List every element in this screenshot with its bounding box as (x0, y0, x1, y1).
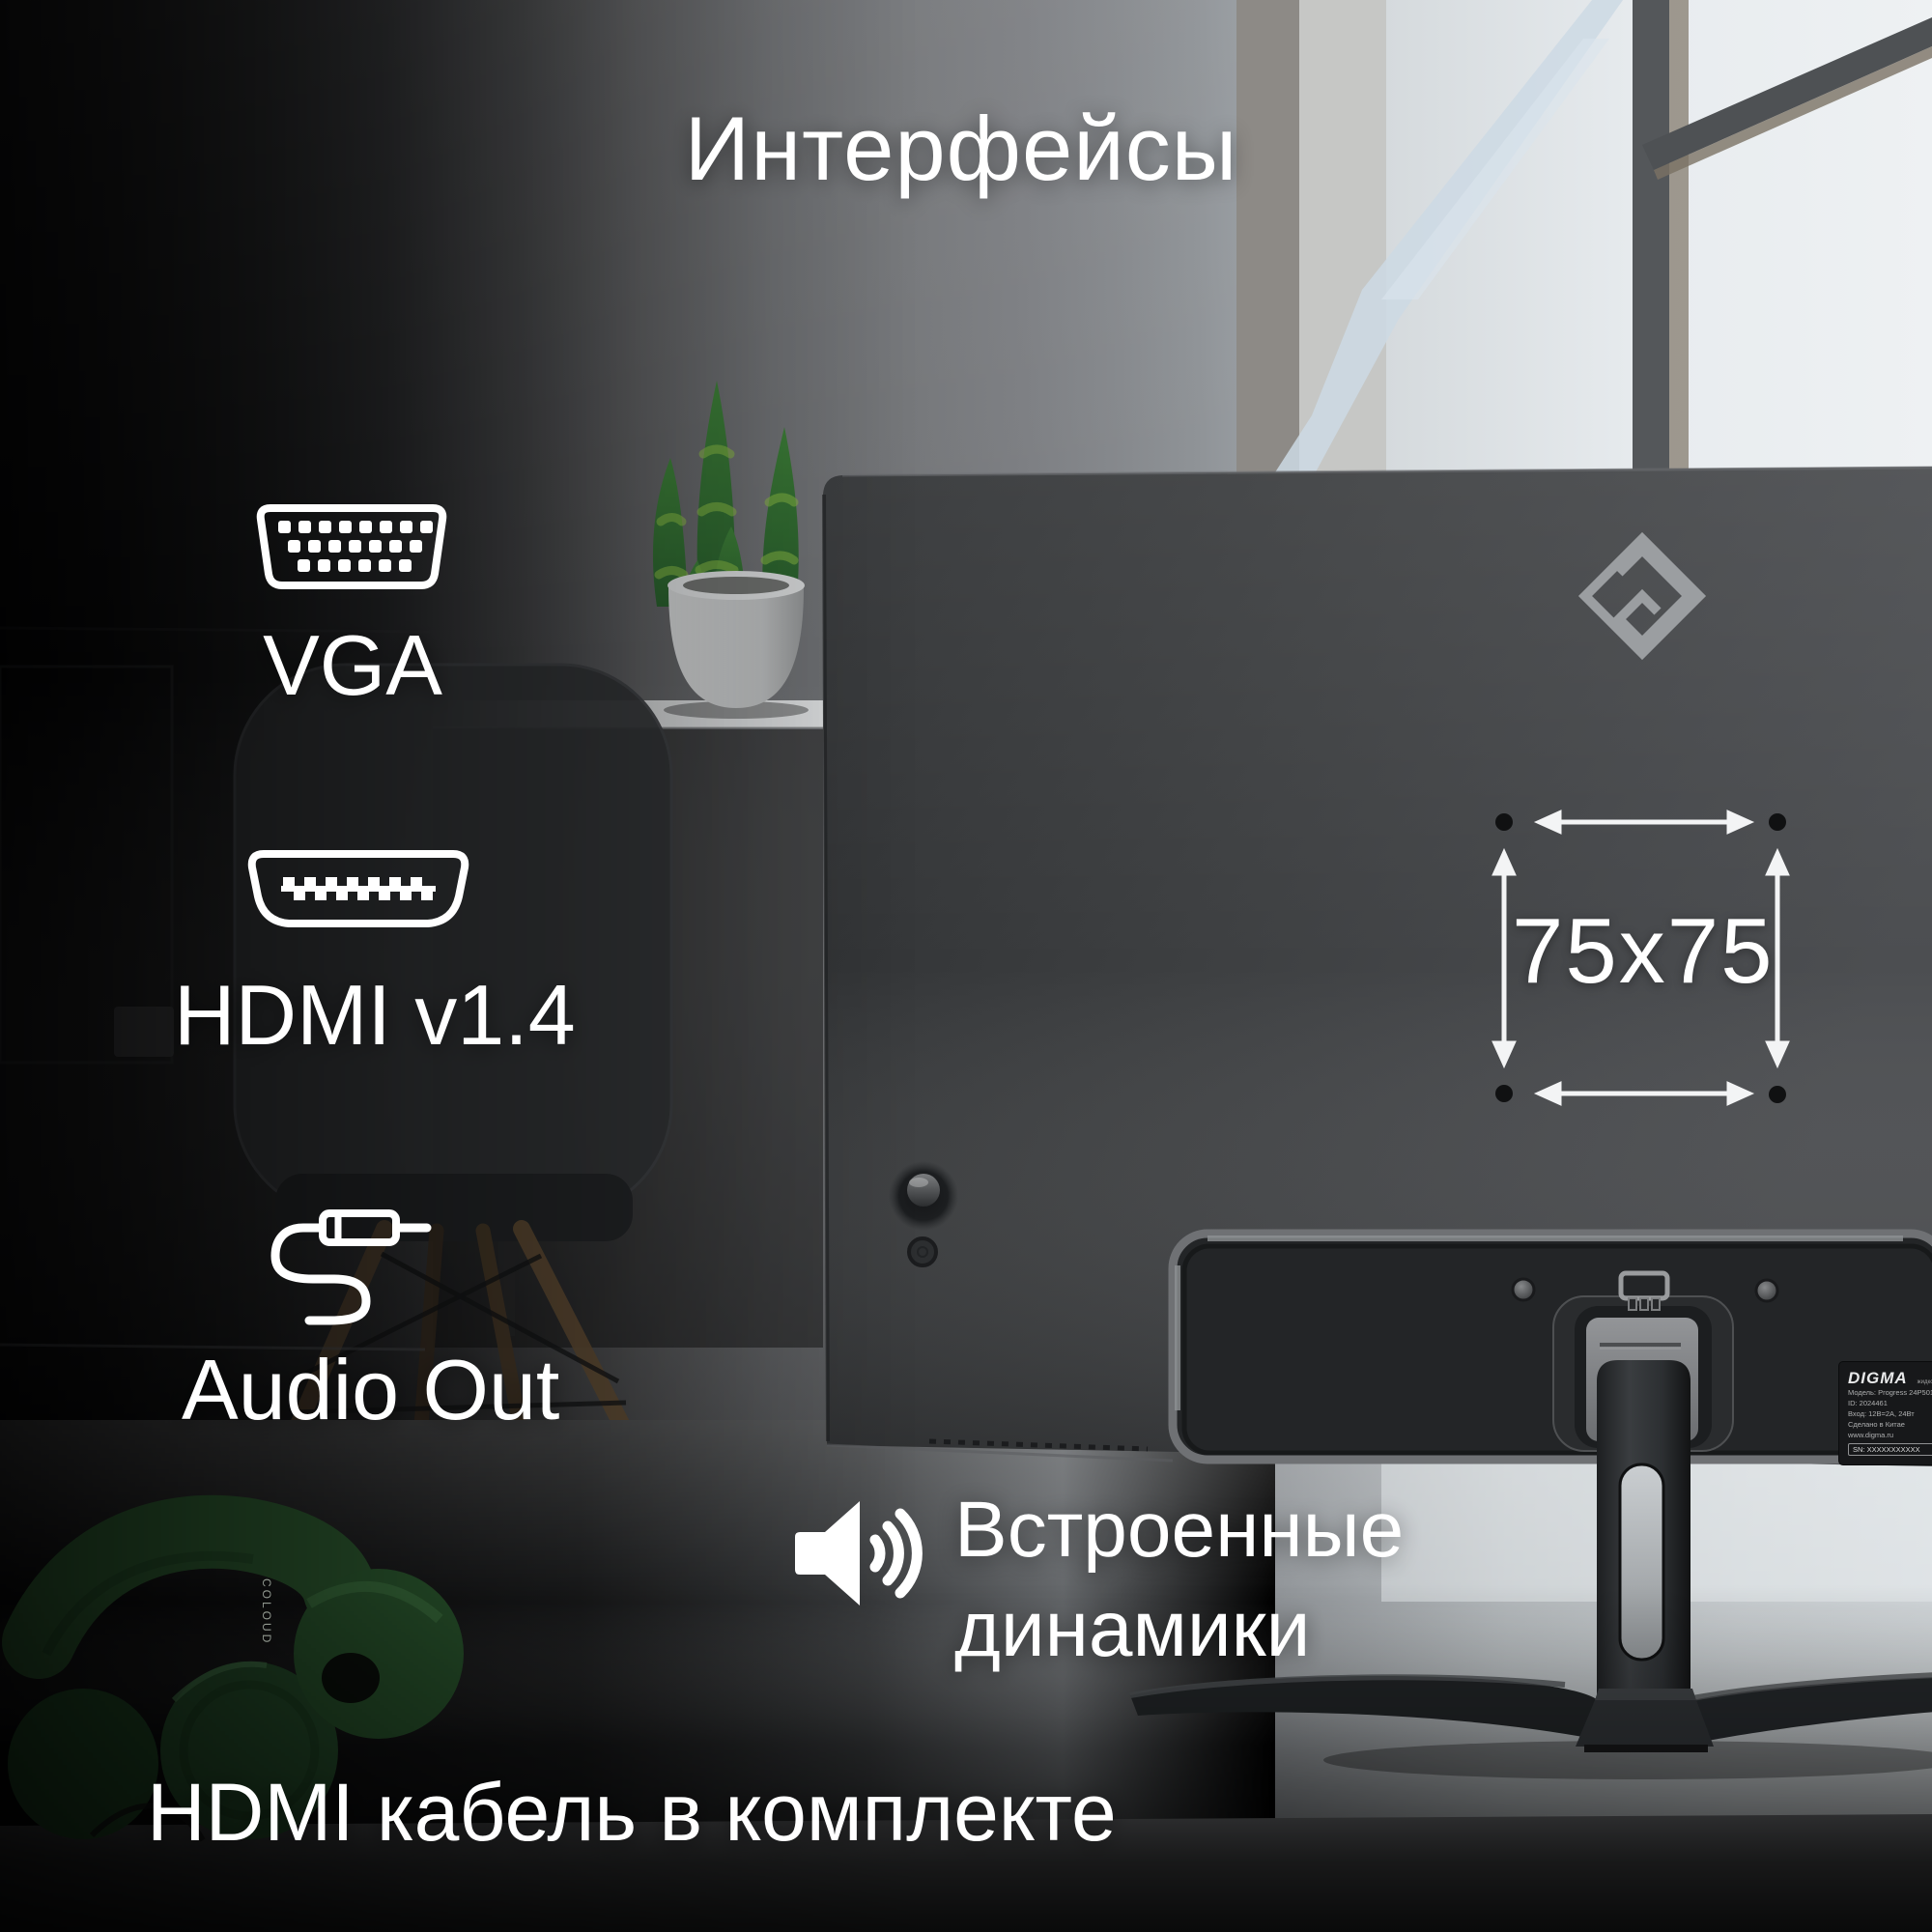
speakers-label: Встроенные динамики (954, 1480, 1404, 1680)
speakers-label-line2: динамики (954, 1579, 1404, 1679)
hdmi-label: HDMI v1.4 (174, 966, 576, 1065)
speakers-label-line1: Встроенные (954, 1480, 1404, 1579)
vga-connector-icon (253, 502, 450, 591)
vga-label: VGA (174, 616, 531, 715)
headphones-brand-label: COLOUD (260, 1578, 273, 1645)
footnote: HDMI кабель в комплекте (147, 1766, 1117, 1860)
sticker-website: www.digma.ru (1848, 1431, 1893, 1439)
promo-image: Интерфейсы VGA (0, 0, 1932, 1932)
screw (1756, 1280, 1777, 1301)
sticker-serial: SN: XXXXXXXXXXX (1848, 1443, 1932, 1456)
window (1236, 0, 1932, 502)
sticker-device-type: жидкокр. монитор (1918, 1379, 1932, 1385)
sticker-model: Модель: Progress 24P501F (1848, 1388, 1932, 1399)
audio-jack-icon (263, 1206, 451, 1336)
vesa-size-label: 75x75 (1512, 898, 1773, 1005)
screw (1513, 1279, 1534, 1300)
sticker-id: ID: 2024461 (1848, 1399, 1932, 1409)
sticker-brand: DIGMA (1848, 1369, 1908, 1388)
hdmi-connector-icon (244, 846, 472, 935)
monitor-info-sticker: DIGMA жидкокр. монитор Модель: Progress … (1838, 1361, 1932, 1465)
sticker-power: Вход: 12В=2А, 24Вт (1848, 1409, 1932, 1420)
page-title: Интерфейсы (478, 97, 1444, 201)
sticker-origin: Сделано в Китае (1848, 1420, 1932, 1431)
speaker-icon (792, 1486, 929, 1623)
audio-out-label: Audio Out (182, 1341, 559, 1439)
